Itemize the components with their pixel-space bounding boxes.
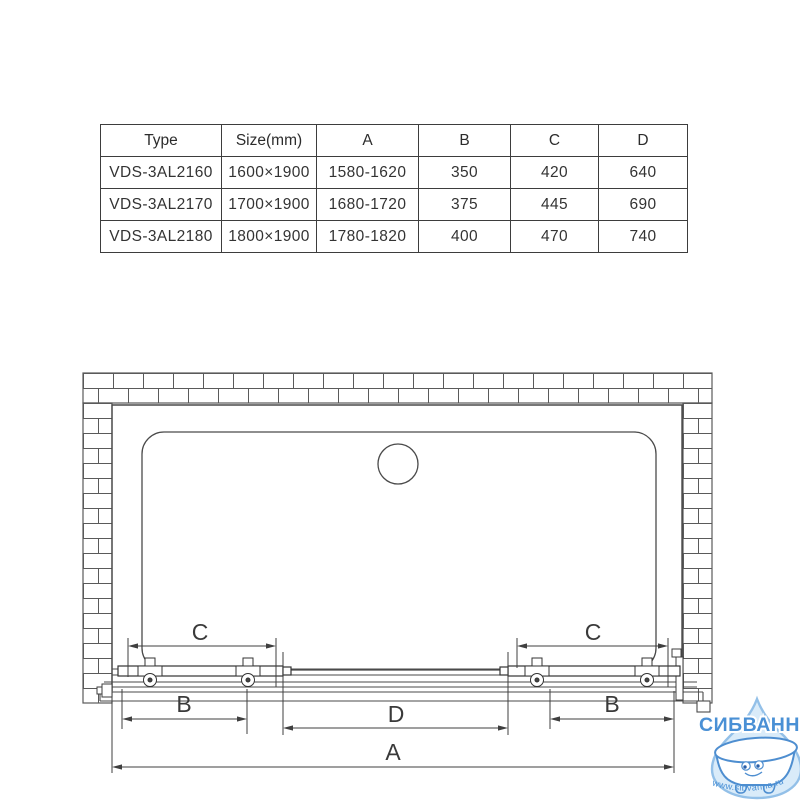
brick-wall-top [83,373,712,403]
brick-wall-left [83,403,112,703]
page-root: { "spec_table": { "headers": ["Type", "S… [0,0,800,800]
dim-label-a: A [385,739,401,765]
drain-circle [378,444,418,484]
brick-wall-right [683,403,712,703]
dim-label-b-right: B [604,691,619,717]
brand-name: СИБВАННА [699,714,800,736]
dim-label-c-left: C [192,619,209,645]
dim-label-b-left: B [176,691,191,717]
brand-logo: www.sibvanna.ru СИБВАННА [699,699,800,798]
installation-diagram: C C B B D A www.sibvanna.ru СИБВАННА [0,0,800,800]
dim-label-d: D [388,701,405,727]
dim-label-c-right: C [585,619,602,645]
